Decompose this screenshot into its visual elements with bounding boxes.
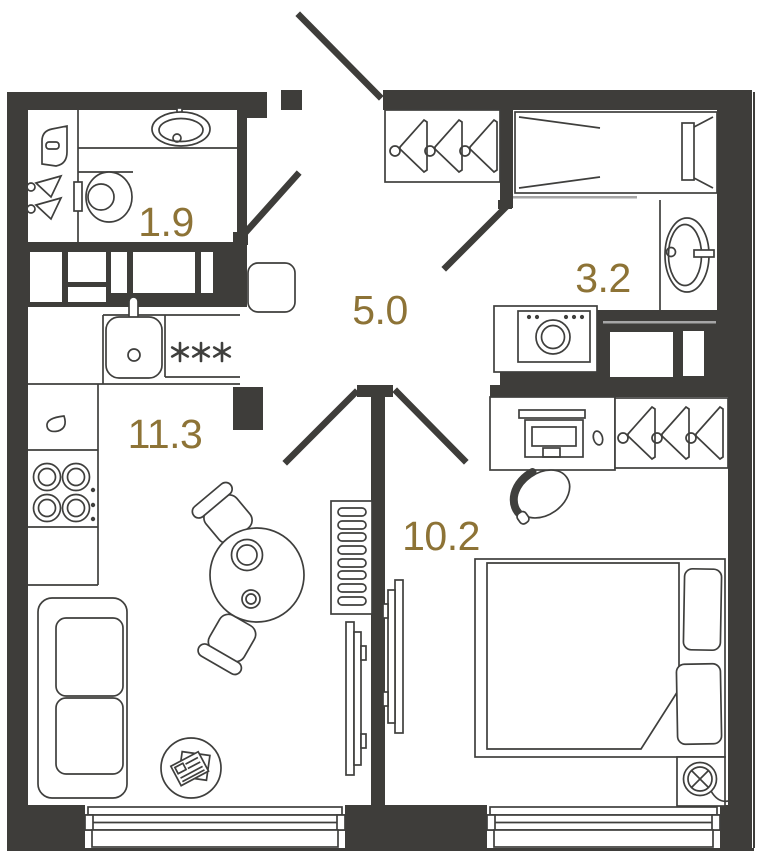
- dining-table-icon: [210, 528, 304, 622]
- sofa-icon: [38, 598, 127, 798]
- bedroom-door-swing: [397, 392, 464, 460]
- bathroom-sink-icon: [152, 108, 210, 146]
- water-heater-icon: [42, 126, 67, 166]
- desk-icon: [490, 397, 615, 470]
- pillow-icon: [676, 664, 721, 745]
- hob-asterisks-icon: [172, 343, 230, 361]
- counter-drop-icon: [47, 416, 65, 431]
- tv-icon: [346, 622, 366, 775]
- area-label-hallway: 5.0: [352, 287, 408, 333]
- area-label-bathroom: 1.9: [138, 199, 194, 245]
- magazine-table-icon: [161, 738, 221, 798]
- floor-plan: 1.9 5.0 3.2 11.3 10.2: [0, 0, 760, 863]
- area-label-bathroom-large: 3.2: [575, 255, 631, 301]
- knob-dots-icon: [91, 503, 95, 507]
- floor-plan-canvas: 1.9 5.0 3.2 11.3 10.2: [0, 0, 760, 863]
- pillow-icon: [683, 569, 721, 651]
- sliding-door-track: [513, 196, 637, 199]
- bathroom-small: [27, 108, 237, 242]
- toilet-icon: [74, 172, 132, 222]
- hallway-cabinet-icon: [248, 263, 295, 312]
- knob-dots-icon: [91, 517, 95, 521]
- ceiling-lamp-icon: [677, 757, 728, 806]
- knob-dots-icon: [91, 488, 95, 492]
- stove-burners-icon: [34, 464, 96, 522]
- living-window: [85, 807, 345, 847]
- bedroom-wardrobe-icon: [615, 398, 728, 468]
- duvet-icon: [487, 563, 683, 749]
- area-label-kitchen-living: 11.3: [128, 411, 203, 457]
- bathroom-large-door-swing: [446, 208, 505, 267]
- entrance-door-swing: [300, 16, 379, 96]
- bathroom-large-sink-icon: [660, 200, 714, 310]
- towel-hook-icon: [27, 176, 61, 197]
- bedroom-window: [487, 807, 720, 847]
- wardrobe-icon: [385, 110, 500, 182]
- tv-icon: [383, 580, 403, 733]
- radiator-icon: [331, 501, 372, 614]
- kitchen-sink-icon: [106, 297, 162, 378]
- bathtub-icon: [515, 112, 717, 193]
- washing-machine-icon: [494, 306, 597, 372]
- living-door-swing: [287, 393, 355, 461]
- bedroom: [383, 397, 728, 806]
- double-bed-icon: [475, 559, 725, 757]
- area-label-bedroom: 10.2: [402, 513, 480, 559]
- towel-hook-icon: [27, 198, 61, 219]
- bathroom-door-swing: [245, 175, 297, 233]
- hallway: [248, 110, 500, 312]
